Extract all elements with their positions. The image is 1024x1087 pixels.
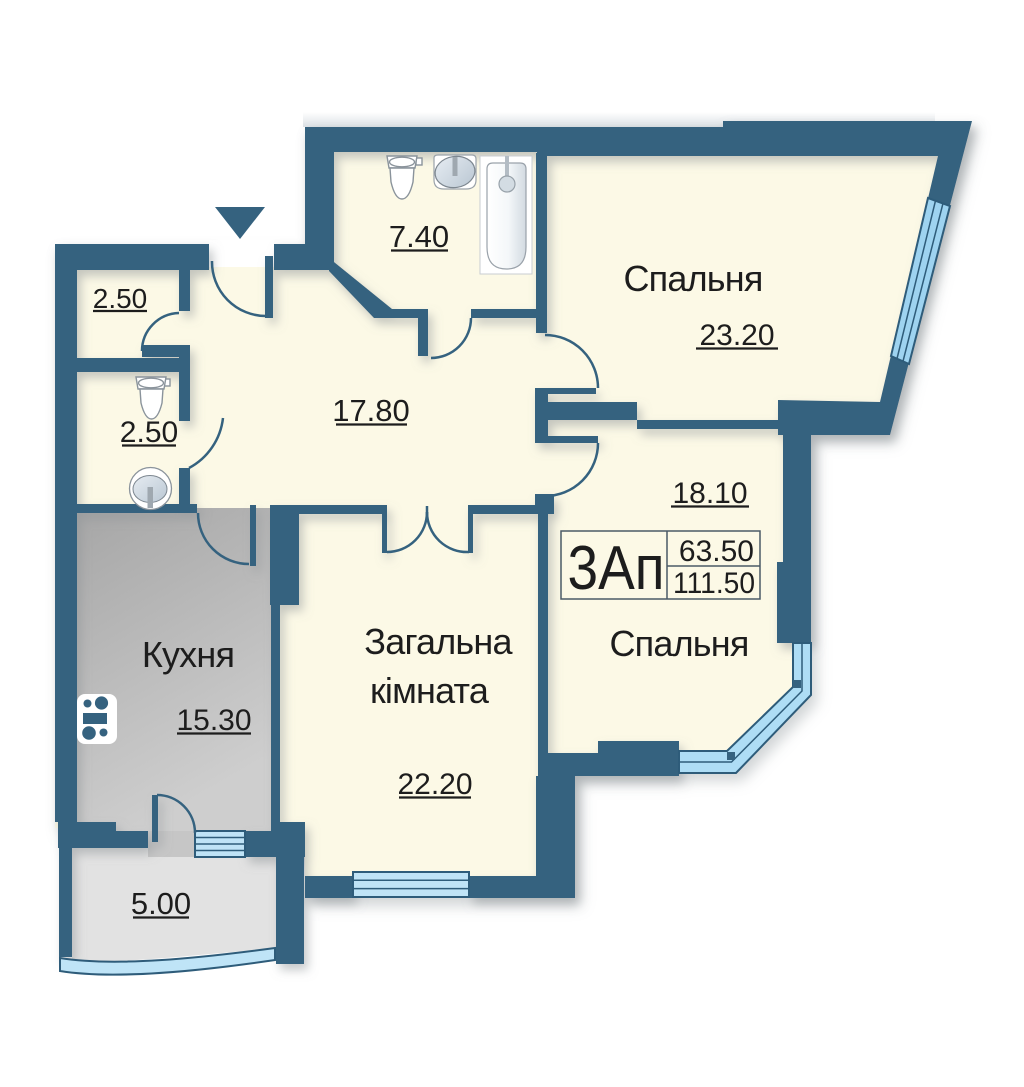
svg-text:2.50: 2.50 [120,416,178,449]
svg-text:2.50: 2.50 [93,283,148,314]
svg-text:111.50: 111.50 [673,567,755,600]
svg-text:Спальня: Спальня [609,623,748,664]
svg-text:15.30: 15.30 [176,704,251,737]
svg-text:Загальна: Загальна [364,621,513,662]
svg-text:23.20: 23.20 [699,319,774,352]
svg-text:63.50: 63.50 [679,535,754,568]
svg-text:22.20: 22.20 [397,768,472,801]
svg-text:7.40: 7.40 [389,219,449,254]
svg-text:3Ап: 3Ап [568,534,665,603]
svg-text:18.10: 18.10 [672,477,747,510]
svg-text:кімната: кімната [370,670,490,711]
svg-text:5.00: 5.00 [131,886,191,921]
svg-text:Кухня: Кухня [142,634,234,675]
svg-text:Спальня: Спальня [623,258,762,299]
svg-text:17.80: 17.80 [332,393,410,428]
